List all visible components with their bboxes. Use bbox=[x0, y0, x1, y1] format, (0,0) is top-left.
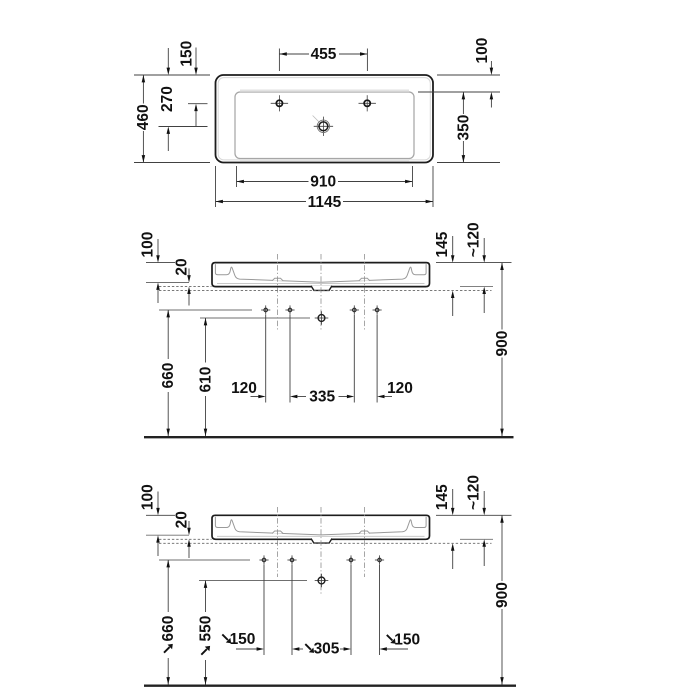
svg-text:~120: ~120 bbox=[465, 222, 482, 257]
svg-text:150: 150 bbox=[230, 631, 256, 648]
svg-text:270: 270 bbox=[159, 86, 176, 112]
svg-text:660: 660 bbox=[160, 363, 177, 389]
svg-text:350: 350 bbox=[455, 115, 472, 141]
svg-text:900: 900 bbox=[494, 331, 511, 357]
svg-text:145: 145 bbox=[434, 484, 451, 510]
svg-text:305: 305 bbox=[314, 641, 340, 658]
svg-text:100: 100 bbox=[140, 484, 157, 510]
svg-text:460: 460 bbox=[135, 104, 152, 130]
svg-text:900: 900 bbox=[494, 582, 511, 608]
svg-text:20: 20 bbox=[173, 258, 190, 275]
svg-text:~120: ~120 bbox=[465, 475, 482, 510]
svg-text:660: 660 bbox=[160, 616, 177, 642]
svg-text:335: 335 bbox=[309, 388, 335, 405]
svg-text:100: 100 bbox=[474, 38, 491, 64]
svg-text:455: 455 bbox=[311, 46, 337, 63]
svg-text:610: 610 bbox=[197, 367, 214, 393]
svg-text:100: 100 bbox=[140, 232, 157, 258]
svg-text:150: 150 bbox=[394, 632, 420, 649]
svg-text:145: 145 bbox=[434, 231, 451, 257]
svg-text:1145: 1145 bbox=[308, 194, 342, 211]
svg-text:120: 120 bbox=[387, 380, 413, 397]
svg-text:20: 20 bbox=[173, 511, 190, 528]
svg-text:120: 120 bbox=[231, 380, 257, 397]
svg-text:910: 910 bbox=[310, 173, 336, 190]
svg-text:550: 550 bbox=[197, 616, 214, 642]
svg-text:150: 150 bbox=[179, 41, 196, 67]
